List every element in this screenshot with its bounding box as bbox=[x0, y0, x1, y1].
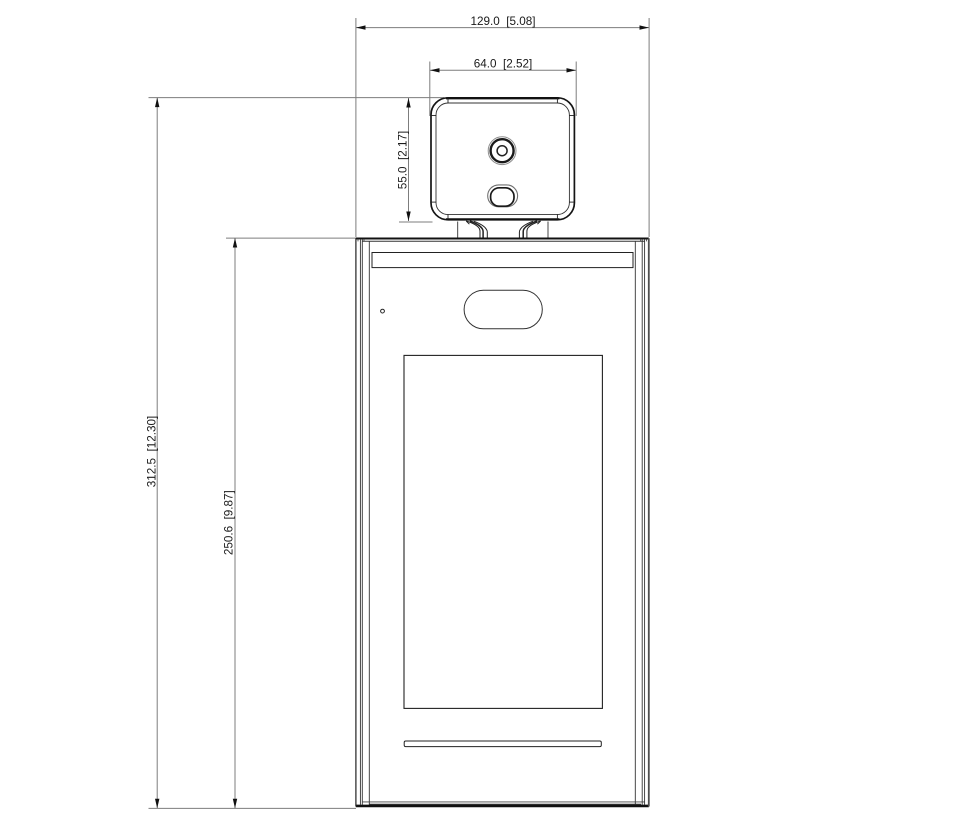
svg-text:55.0 [2.17]: 55.0 [2.17] bbox=[397, 131, 410, 189]
svg-text:312.5 [12.30]: 312.5 [12.30] bbox=[146, 416, 159, 487]
svg-text:129.0 [5.08]: 129.0 [5.08] bbox=[471, 15, 536, 28]
svg-text:64.0 [2.52]: 64.0 [2.52] bbox=[474, 58, 532, 71]
svg-text:250.6 [9.87]: 250.6 [9.87] bbox=[223, 490, 236, 555]
